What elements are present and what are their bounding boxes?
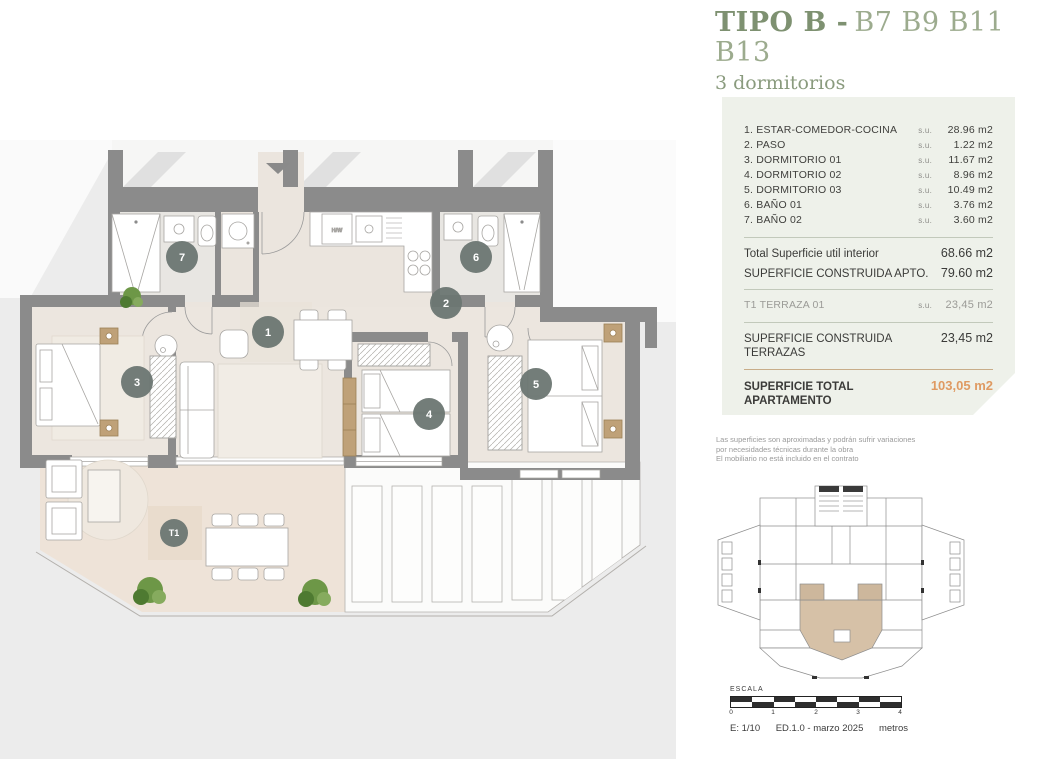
page-title: TIPO B -B7 B9 B11 B13: [715, 8, 1035, 68]
room-badge-1: 1: [252, 316, 284, 348]
type-label: TIPO B -: [715, 7, 848, 38]
svg-text:1: 1: [265, 327, 271, 339]
scale-bar-block: ESCALA 0 1 2 3 4 E: 1/10 ED.1.0 - marzo …: [730, 686, 906, 734]
building-key-plan: [712, 480, 970, 682]
room-badge-3: 3: [121, 366, 153, 398]
terrace-total-row: SUPERFICIE CONSTRUIDA TERRAZAS23,45 m2: [744, 331, 993, 360]
disclaimer-line: El mobiliario no está incluido en el con…: [716, 454, 976, 464]
divider: [744, 237, 993, 238]
surface-row: 3. DORMITORIO 01s.u.11.67 m2: [744, 153, 993, 168]
title-block: TIPO B -B7 B9 B11 B13 3 dormitorios: [715, 8, 1035, 94]
disclaimer-line: por necesidades técnicas durante la obra: [716, 445, 976, 455]
svg-text:5: 5: [533, 379, 539, 391]
surface-row: 6. BAÑO 01s.u.3.76 m2: [744, 198, 993, 213]
bedroom-03-furniture: [487, 324, 622, 452]
room-badge-7: 7: [166, 241, 198, 273]
divider: [744, 289, 993, 290]
appliance-label: H/W: [332, 228, 344, 234]
svg-text:2: 2: [443, 298, 449, 310]
scale-title: ESCALA: [730, 686, 906, 693]
svg-text:4: 4: [426, 409, 433, 421]
divider: [744, 322, 993, 323]
pergola-slats: [352, 470, 622, 602]
surface-row: 5. DORMITORIO 03s.u.10.49 m2: [744, 183, 993, 198]
scale-bar: [730, 696, 902, 708]
scale-labels: E: 1/10 ED.1.0 - marzo 2025 metros: [730, 723, 908, 734]
room-badge-4: 4: [413, 398, 445, 430]
room-badge-5: 5: [520, 368, 552, 400]
surface-row: 1. ESTAR-COMEDOR-COCINAs.u.28.96 m2: [744, 123, 993, 138]
terrace-row: T1 TERRAZA 01s.u.23,45 m2: [744, 298, 993, 313]
svg-text:T1: T1: [169, 528, 180, 538]
total-util-row: Total Superficie util interior68.66 m2: [744, 246, 993, 260]
surface-table-card: 1. ESTAR-COMEDOR-COCINAs.u.28.96 m2 2. P…: [722, 97, 1015, 415]
scale-ticks: 0 1 2 3 4: [730, 708, 902, 717]
bedrooms-subtitle: 3 dormitorios: [715, 72, 1035, 94]
divider-tan: [744, 369, 993, 370]
surface-row: 4. DORMITORIO 02s.u.8.96 m2: [744, 168, 993, 183]
surface-row: 7. BAÑO 02s.u.3.60 m2: [744, 213, 993, 228]
terrace-badge: T1: [160, 519, 188, 547]
scale-ratio: E: 1/10: [730, 723, 760, 734]
page: H/W: [0, 0, 1047, 759]
floor-plan: H/W: [0, 0, 690, 759]
svg-text:3: 3: [134, 377, 140, 389]
surface-row: 2. PASOs.u.1.22 m2: [744, 138, 993, 153]
room-badge-2: 2: [430, 287, 462, 319]
grand-total-row: SUPERFICIE TOTAL APARTAMENTO103,05 m2: [744, 378, 993, 408]
edition-date: ED.1.0 - marzo 2025: [776, 723, 864, 734]
disclaimer-text: Las superficies son aproximadas y podrán…: [716, 435, 976, 464]
svg-text:7: 7: [179, 252, 185, 264]
scale-unit: metros: [879, 723, 908, 734]
total-construida-row: SUPERFICIE CONSTRUIDA APTO.79.60 m2: [744, 266, 993, 280]
disclaimer-line: Las superficies son aproximadas y podrán…: [716, 435, 976, 445]
svg-text:6: 6: [473, 252, 479, 264]
room-badge-6: 6: [460, 241, 492, 273]
